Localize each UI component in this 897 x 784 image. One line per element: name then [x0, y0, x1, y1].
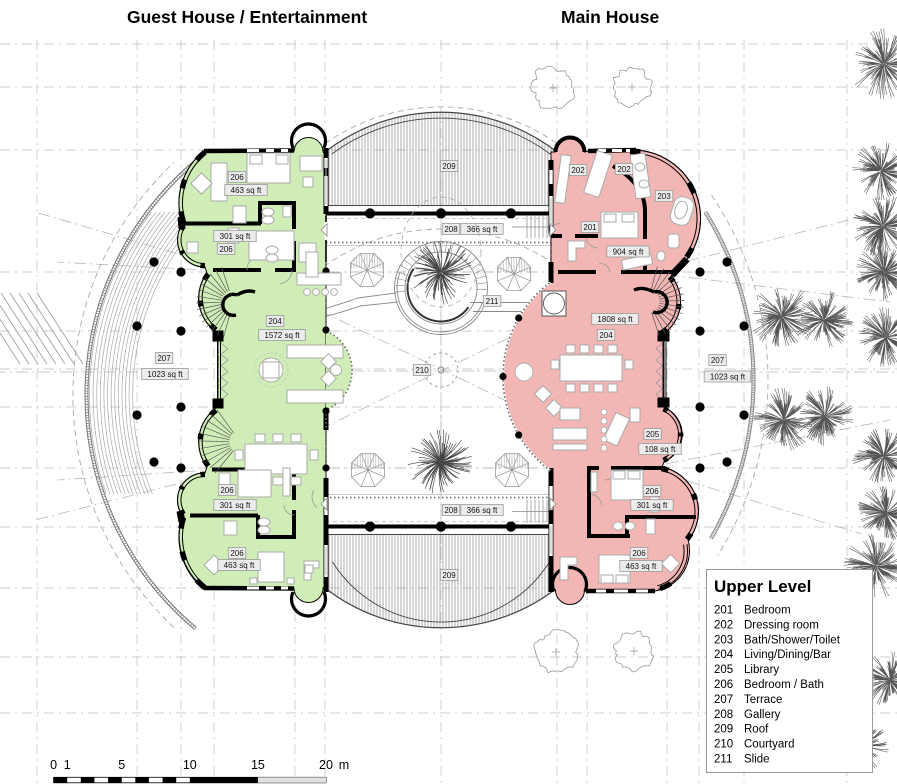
svg-text:1572 sq ft: 1572 sq ft	[264, 331, 300, 340]
svg-text:301 sq ft: 301 sq ft	[637, 501, 668, 510]
svg-text:1: 1	[64, 758, 71, 772]
svg-text:202: 202	[617, 165, 631, 174]
svg-text:208: 208	[444, 506, 458, 515]
svg-text:Courtyard: Courtyard	[744, 739, 795, 751]
svg-text:15: 15	[251, 758, 265, 772]
svg-text:210: 210	[415, 366, 429, 375]
svg-text:366 sq ft: 366 sq ft	[467, 506, 498, 515]
svg-text:108 sq ft: 108 sq ft	[645, 445, 676, 454]
svg-text:1023 sq ft: 1023 sq ft	[147, 370, 183, 379]
svg-text:206: 206	[219, 245, 233, 254]
svg-text:Dressing room: Dressing room	[744, 619, 819, 631]
svg-text:209: 209	[442, 571, 456, 580]
svg-text:203: 203	[657, 192, 671, 201]
svg-text:20: 20	[319, 758, 333, 772]
svg-text:301 sq ft: 301 sq ft	[220, 501, 251, 510]
svg-text:206: 206	[632, 549, 646, 558]
svg-text:Gallery: Gallery	[744, 709, 781, 721]
svg-text:204: 204	[714, 649, 734, 661]
svg-text:Bedroom / Bath: Bedroom / Bath	[744, 679, 824, 691]
svg-text:209: 209	[714, 724, 733, 736]
svg-text:904 sq ft: 904 sq ft	[613, 248, 644, 257]
svg-text:204: 204	[268, 317, 282, 326]
svg-text:Bath/Shower/Toilet: Bath/Shower/Toilet	[744, 634, 841, 646]
svg-text:Living/Dining/Bar: Living/Dining/Bar	[744, 649, 831, 661]
svg-text:301 sq ft: 301 sq ft	[220, 232, 251, 241]
svg-text:Roof: Roof	[744, 724, 769, 736]
svg-text:201: 201	[583, 223, 597, 232]
svg-text:202: 202	[571, 166, 585, 175]
svg-text:202: 202	[714, 619, 733, 631]
svg-text:Guest House / Entertainment: Guest House / Entertainment	[127, 7, 367, 27]
svg-text:206: 206	[230, 173, 244, 182]
svg-text:206: 206	[645, 487, 659, 496]
svg-text:206: 206	[714, 679, 733, 691]
svg-text:209: 209	[442, 162, 456, 171]
svg-text:10: 10	[183, 758, 197, 772]
svg-text:0: 0	[50, 758, 57, 772]
svg-text:463 sq ft: 463 sq ft	[231, 186, 262, 195]
svg-text:366 sq ft: 366 sq ft	[467, 225, 498, 234]
svg-text:Main House: Main House	[561, 7, 659, 27]
svg-text:208: 208	[444, 225, 458, 234]
svg-text:Upper Level: Upper Level	[714, 577, 811, 596]
svg-text:207: 207	[711, 356, 725, 365]
svg-text:Slide: Slide	[744, 754, 770, 766]
svg-text:211: 211	[714, 754, 732, 766]
svg-text:463 sq ft: 463 sq ft	[626, 562, 657, 571]
svg-text:211: 211	[486, 297, 499, 306]
svg-text:204: 204	[599, 331, 613, 340]
svg-text:207: 207	[714, 694, 733, 706]
svg-text:205: 205	[714, 664, 733, 676]
svg-text:208: 208	[714, 709, 733, 721]
svg-text:m: m	[339, 758, 349, 772]
svg-text:1023 sq ft: 1023 sq ft	[710, 373, 746, 382]
svg-text:5: 5	[118, 758, 125, 772]
svg-text:Library: Library	[744, 664, 779, 676]
svg-text:1808 sq ft: 1808 sq ft	[597, 315, 633, 324]
svg-text:206: 206	[220, 486, 234, 495]
svg-text:207: 207	[157, 354, 171, 363]
svg-text:Terrace: Terrace	[744, 694, 782, 706]
svg-text:201: 201	[714, 605, 733, 617]
svg-text:203: 203	[714, 634, 733, 646]
svg-text:Bedroom: Bedroom	[744, 605, 791, 617]
svg-text:210: 210	[714, 739, 733, 751]
svg-text:205: 205	[646, 430, 660, 439]
svg-text:206: 206	[230, 549, 244, 558]
svg-text:463 sq ft: 463 sq ft	[224, 561, 255, 570]
